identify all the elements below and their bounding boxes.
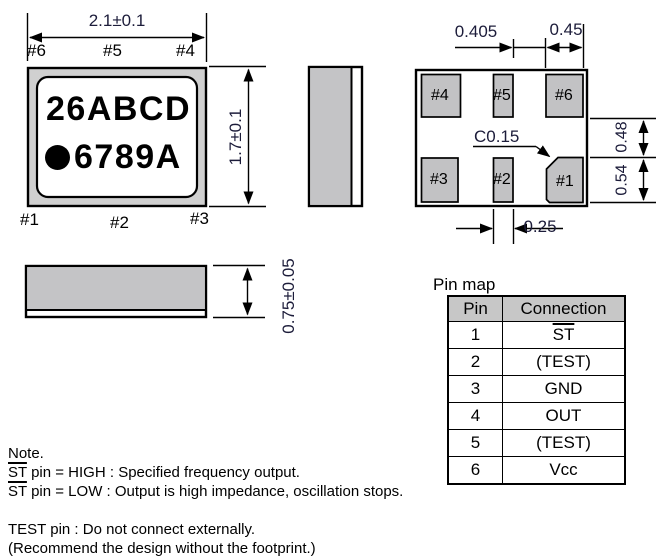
pin-map-cell-conn-5: (TEST) (503, 430, 624, 456)
notes-block: Note. ST pin = HIGH : Specified frequenc… (8, 444, 403, 556)
oscillator-package-drawing: 2.1±0.1 #6 #5 #4 26ABCD 6789A #1 #2 #3 1… (0, 0, 659, 556)
pin-map-cell-conn-6: Vcc (503, 457, 624, 483)
pad-label-1: #1 (556, 173, 574, 191)
dim-pad-gap-label: 0.405 (449, 23, 503, 42)
pin-map-row-6: 6 Vcc (449, 456, 624, 483)
pin-label-1: #1 (20, 211, 39, 230)
pin-map-cell-pin-4: 4 (449, 403, 503, 429)
pin-label-6: #6 (27, 42, 46, 61)
pin-map-cell-conn-3: GND (503, 376, 624, 402)
package-marking-line2: 6789A (45, 139, 182, 176)
pin-map-row-5: 5 (TEST) (449, 429, 624, 456)
pad-label-2: #2 (493, 171, 511, 189)
pin-label-4: #4 (176, 42, 195, 61)
note-st-low: ST pin = LOW : Output is high impedance,… (8, 482, 403, 501)
note-title: Note. (8, 444, 403, 463)
side-view-horizontal (26, 266, 206, 317)
pad-label-5: #5 (493, 87, 511, 105)
pin-map-cell-conn-1: ST (503, 322, 624, 348)
st-label: ST (8, 464, 27, 481)
pin1-index-dot (45, 145, 70, 170)
dim-row-gap-label: 0.48 (614, 121, 632, 154)
dim-pad6-width-label: 0.45 (539, 21, 593, 40)
dim-chamfer-label: C0.15 (474, 128, 519, 147)
pin-map-cell-pin-2: 2 (449, 349, 503, 375)
pin-map-cell-pin-3: 3 (449, 376, 503, 402)
pad-label-4: #4 (431, 87, 449, 105)
pin-label-2: #2 (110, 214, 129, 233)
pin-map-cell-conn-4: OUT (503, 403, 624, 429)
pin-map-table: Pin Connection 1 ST 2 (TEST) 3 GND 4 OUT… (447, 295, 626, 485)
pad-label-3: #3 (430, 171, 448, 189)
pad-label-6: #6 (555, 87, 573, 105)
package-marking-line1: 26ABCD (46, 91, 191, 128)
note-spacer (8, 501, 403, 520)
note-test-2: (Recommend the design without the footpr… (8, 539, 403, 556)
pin-map-cell-pin-6: 6 (449, 457, 503, 483)
note-st-high-text: pin = HIGH : Specified frequency output. (27, 464, 300, 481)
dim-thickness-label: 0.75±0.05 (280, 258, 298, 334)
pin-map-header-connection: Connection (503, 297, 624, 321)
note-st-low-text: pin = LOW : Output is high impedance, os… (27, 483, 403, 500)
pin-map-cell-pin-1: 1 (449, 322, 503, 348)
pin-map-header-pin: Pin (449, 297, 503, 321)
note-st-high: ST pin = HIGH : Specified frequency outp… (8, 463, 403, 482)
pin-map-cell-conn-2: (TEST) (503, 349, 624, 375)
dim-pad-height-label: 0.54 (614, 164, 632, 197)
note-test-1: TEST pin : Do not connect externally. (8, 520, 403, 539)
pin-map-header-row: Pin Connection (449, 297, 624, 321)
pin-map-row-3: 3 GND (449, 375, 624, 402)
package-marking-line2-text: 6789A (74, 139, 182, 176)
pin-map-row-2: 2 (TEST) (449, 348, 624, 375)
pin-label-3: #3 (190, 210, 209, 229)
pin-map-title: Pin map (433, 276, 495, 295)
pin-map-cell-pin-5: 5 (449, 430, 503, 456)
dim-width-label: 2.1±0.1 (62, 12, 172, 31)
dim-pad2-width-label: 0.25 (513, 218, 567, 237)
top-view (28, 68, 206, 206)
dim-thickness-lines (213, 266, 265, 318)
st-label: ST (8, 483, 27, 500)
pin-map-row-1: 1 ST (449, 321, 624, 348)
pin-label-5: #5 (103, 42, 122, 61)
side-view-vertical (309, 67, 362, 206)
dim-height-label: 1.7±0.1 (227, 108, 245, 166)
pin-map-row-4: 4 OUT (449, 402, 624, 429)
